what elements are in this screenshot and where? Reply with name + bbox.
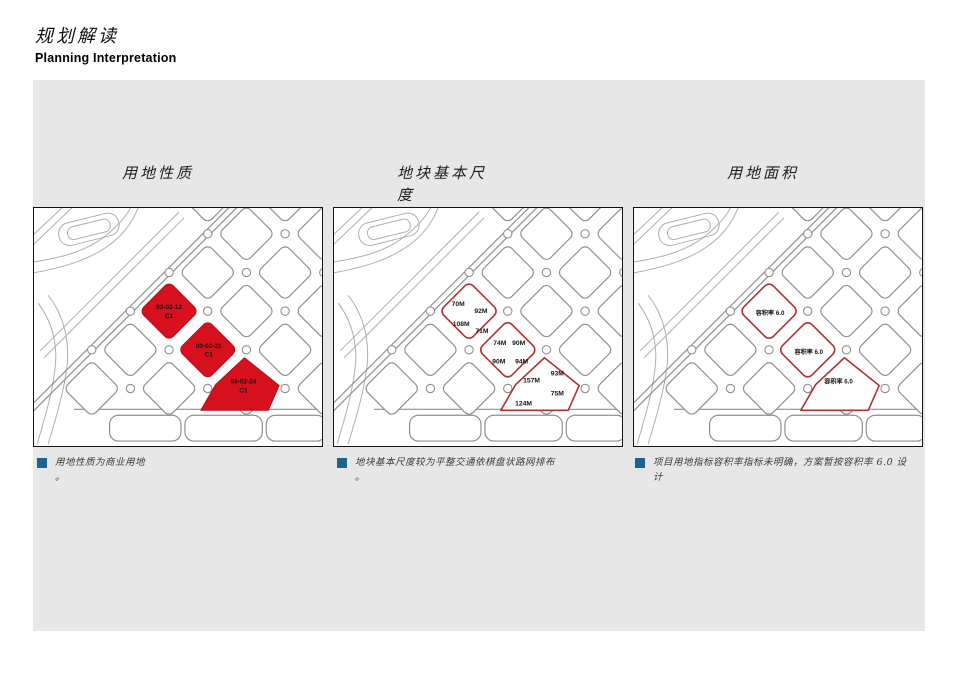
caption-land-use: 用地性质为商业用地 。 <box>37 456 329 485</box>
far-label: 容积率 6.0 <box>793 348 823 356</box>
far-label: 容积率 6.0 <box>755 309 785 317</box>
square-bullet-icon <box>337 458 347 468</box>
dimension-label: 94M <box>515 359 528 366</box>
far-label: 容积率 6.0 <box>823 378 853 386</box>
map-land-area: 容积率 6.0 容积率 6.0 容积率 6.0 <box>633 207 923 447</box>
caption-text: 地块基本尺度较为平整交通依棋盘状路网排布 。 <box>355 456 629 485</box>
dimension-label: 108M <box>453 321 470 328</box>
panel-title-plot-dimensions: 地块基本尺度 <box>397 163 493 207</box>
square-bullet-icon <box>635 458 645 468</box>
page-title-en: Planning Interpretation <box>35 51 176 65</box>
map-plot-dimensions-svg: 70M 92M 108M 71M 74M 90M 90M 94M 157M 93… <box>334 208 622 446</box>
map-land-use: 03-02-12C1 03-02-21C1 03-02-24C1 <box>33 207 323 447</box>
caption-plot-dimensions: 地块基本尺度较为平整交通依棋盘状路网排布 。 <box>337 456 629 485</box>
dimension-label: 93M <box>551 371 564 378</box>
dimension-label: 71M <box>475 328 488 335</box>
dimension-label: 90M <box>512 340 525 347</box>
dimension-label: 90M <box>492 359 505 366</box>
page-title-zh: 规划解读 <box>35 22 119 48</box>
parcel-outline <box>440 282 499 341</box>
dimension-label: 75M <box>551 390 564 397</box>
map-land-area-svg: 容积率 6.0 容积率 6.0 容积率 6.0 <box>634 208 922 446</box>
panel-title-land-area: 用地面积 <box>727 163 799 185</box>
panel-title-land-use: 用地性质 <box>122 163 194 185</box>
map-land-use-svg: 03-02-12C1 03-02-21C1 03-02-24C1 <box>34 208 322 446</box>
dimension-label: 92M <box>474 308 487 315</box>
dimension-label: 74M <box>493 340 506 347</box>
dimension-label: 157M <box>523 378 540 385</box>
caption-text: 用地性质为商业用地 。 <box>55 456 329 485</box>
square-bullet-icon <box>37 458 47 468</box>
dimension-label: 124M <box>515 400 532 407</box>
map-plot-dimensions: 70M 92M 108M 71M 74M 90M 90M 94M 157M 93… <box>333 207 623 447</box>
caption-land-area: 项目用地指标容积率指标未明确，方案暂按容积率 6.0 设 计 <box>635 456 927 485</box>
dimension-label: 70M <box>452 301 465 308</box>
caption-text: 项目用地指标容积率指标未明确，方案暂按容积率 6.0 设 计 <box>653 456 927 485</box>
